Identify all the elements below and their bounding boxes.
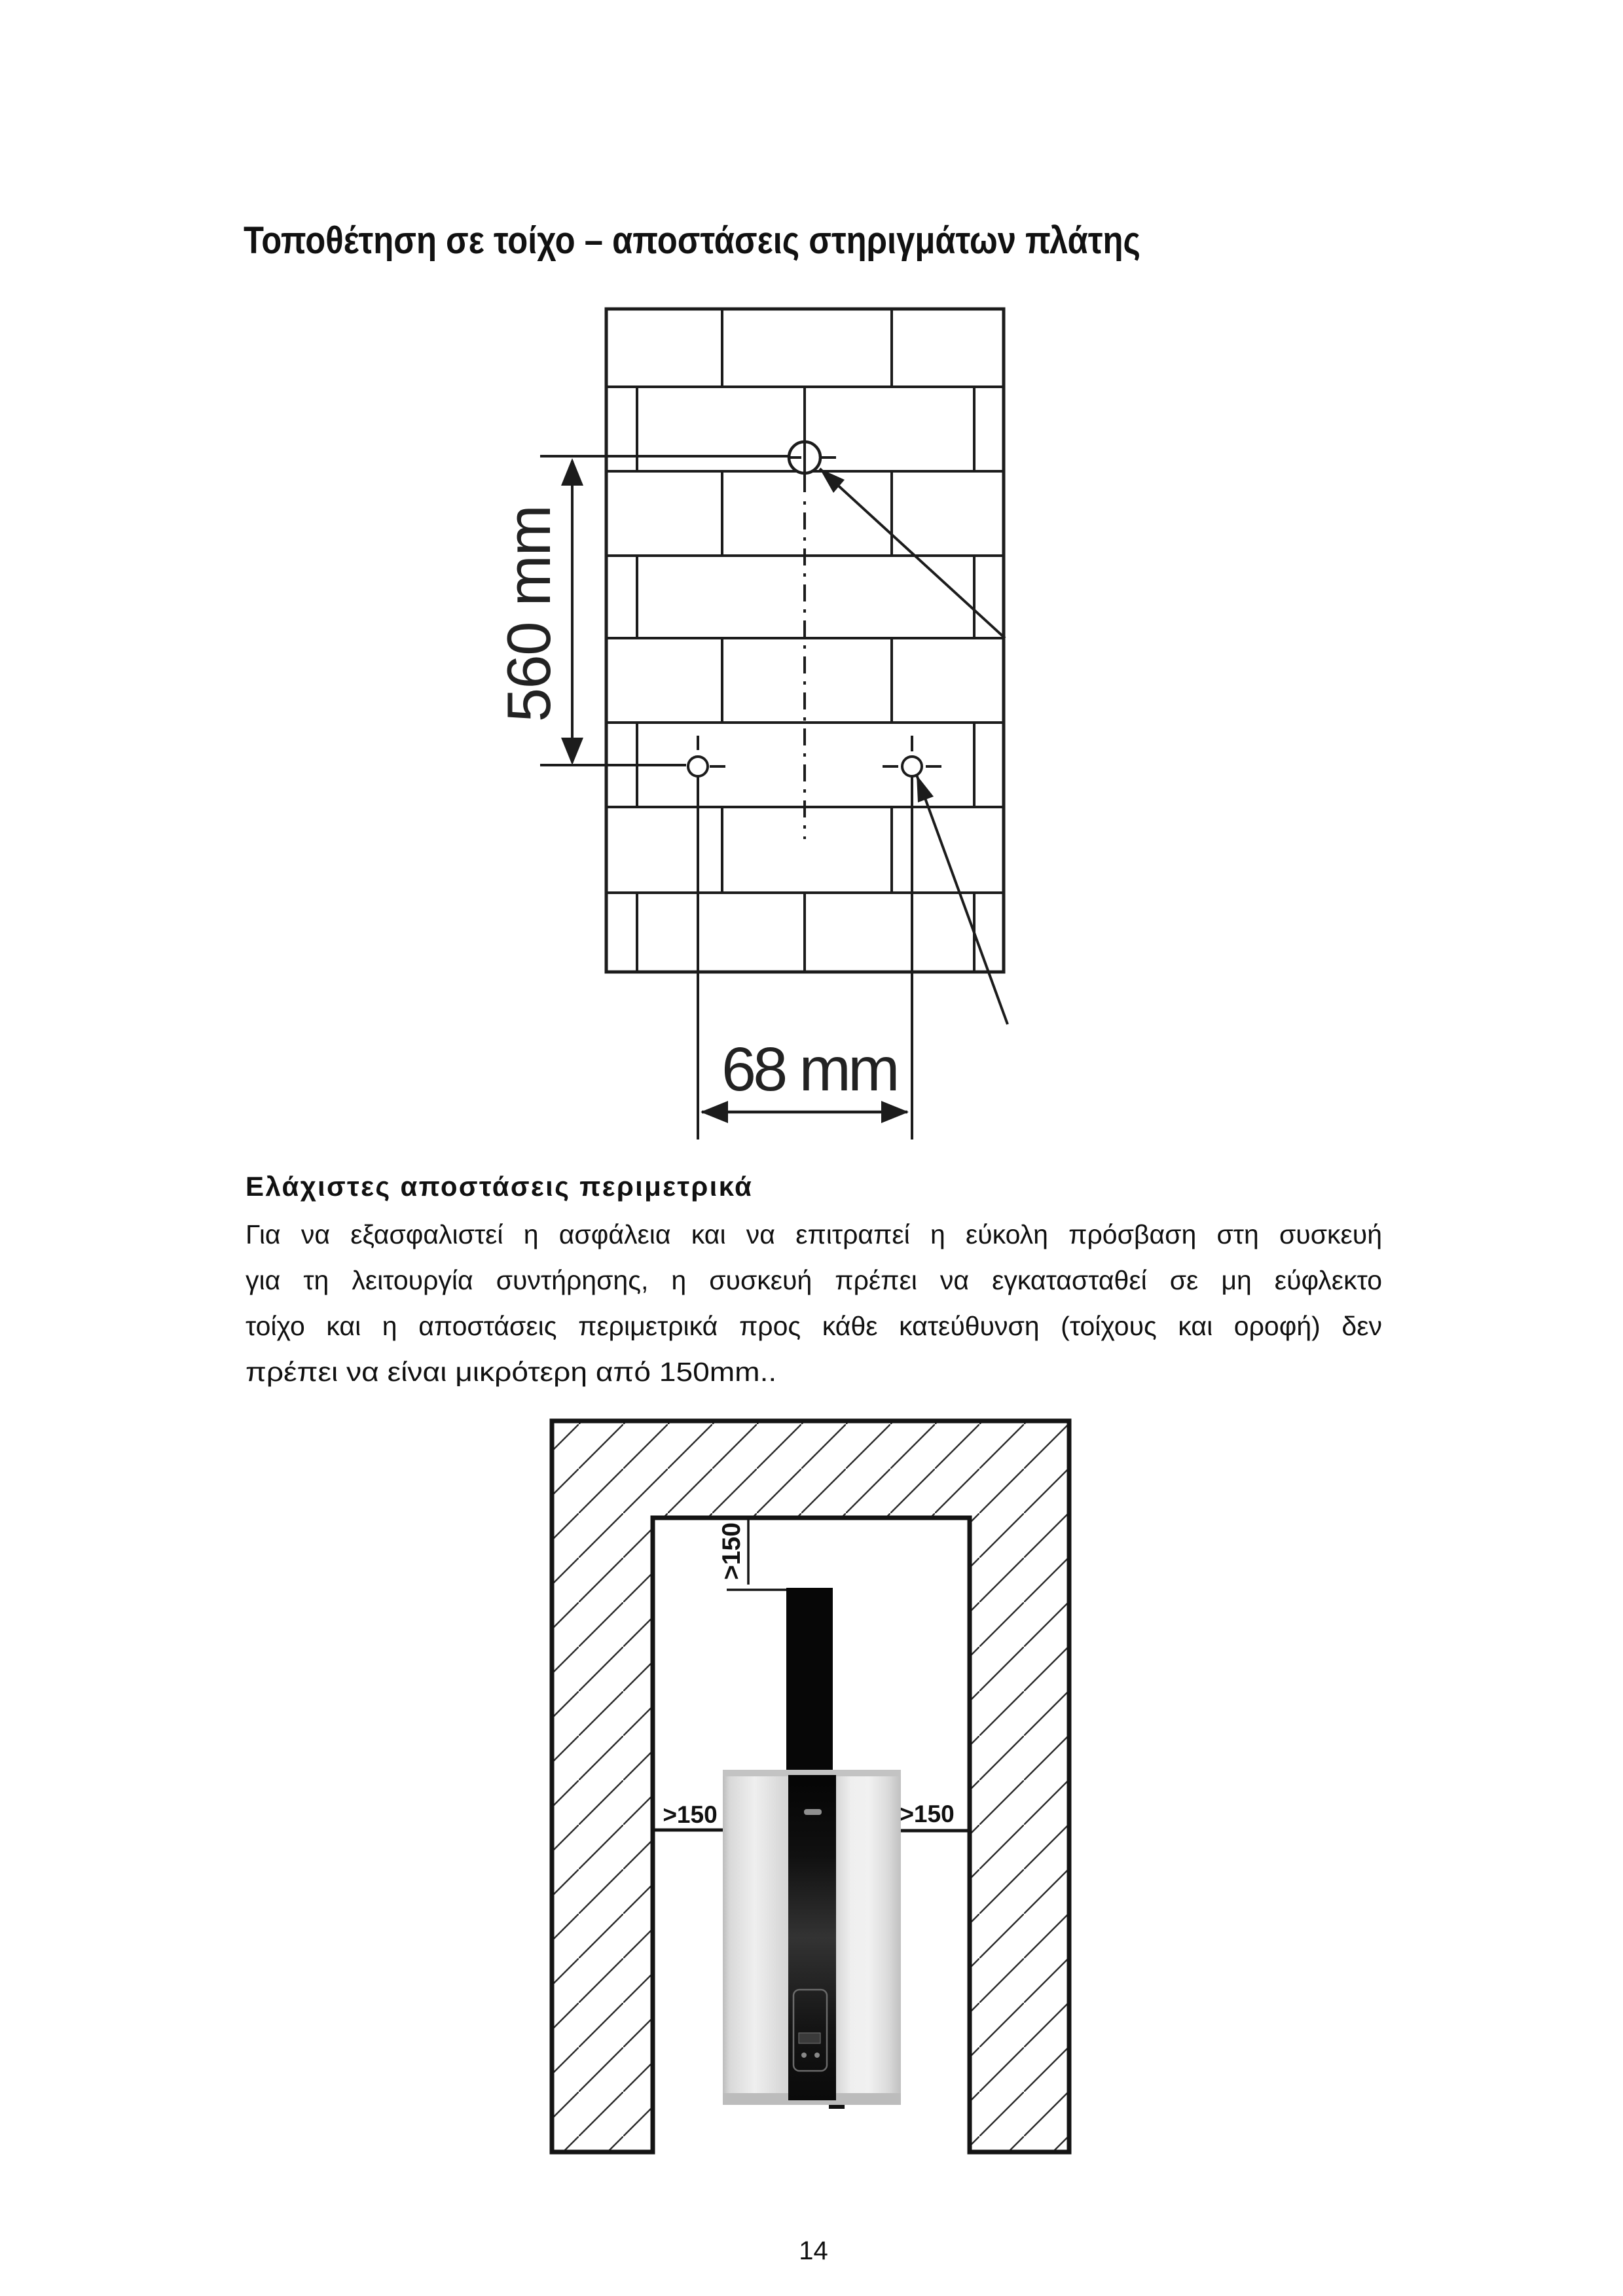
svg-text:>150: >150: [663, 1801, 717, 1828]
svg-text:>150: >150: [900, 1801, 954, 1827]
svg-text:560 mm: 560 mm: [504, 506, 563, 723]
svg-text:68 mm: 68 mm: [721, 1035, 897, 1104]
svg-text:>150: >150: [718, 1522, 746, 1580]
